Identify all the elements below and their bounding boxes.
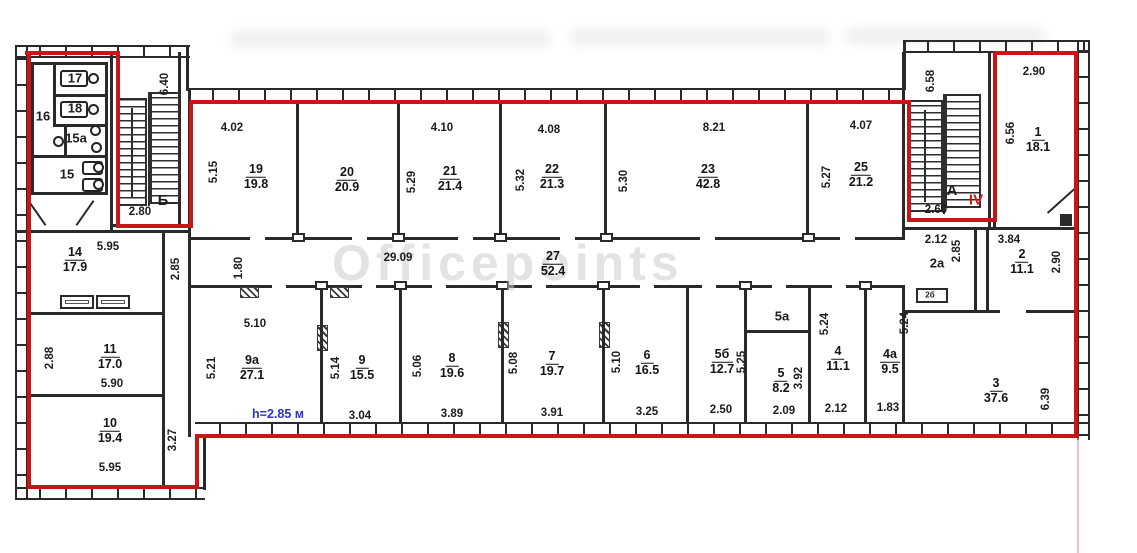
floor-plan: Officepoints 1919.82020.92121.42221.3234… — [0, 0, 1137, 553]
door-opening — [250, 236, 265, 241]
cabinet — [60, 295, 94, 309]
wall-segment — [902, 287, 905, 424]
door-opening — [840, 236, 855, 241]
room-label-11: 1117.0 — [98, 343, 122, 372]
pilaster — [600, 233, 613, 242]
scan-smudge — [230, 30, 550, 48]
wall-segment — [397, 102, 400, 240]
door-opening — [458, 236, 473, 241]
door-opening — [700, 236, 715, 241]
dim-label: 2.12 — [925, 234, 947, 246]
wall-segment — [902, 52, 905, 237]
dim-label: 2.85 — [951, 240, 963, 262]
boundary-line — [25, 51, 120, 55]
door-opening — [560, 236, 575, 241]
room-label-9а: 9а27.1 — [240, 354, 264, 383]
sink-icon — [91, 142, 102, 153]
wall-segment — [864, 288, 867, 424]
wall-segment — [808, 288, 811, 424]
room-label-21: 2121.4 — [438, 165, 462, 194]
door-opening — [432, 284, 446, 289]
pilaster — [802, 233, 815, 242]
wall-segment — [806, 102, 809, 240]
room-label-3: 337.6 — [984, 377, 1008, 406]
boundary-line — [993, 51, 1078, 55]
toilet-icon — [93, 162, 104, 173]
shaft-hatch — [330, 287, 349, 298]
pilaster — [292, 233, 305, 242]
door-jamb — [1060, 214, 1072, 226]
sink-icon — [90, 125, 101, 136]
toilet-icon — [88, 104, 99, 115]
stair-flight — [150, 92, 180, 204]
wall-segment — [186, 45, 189, 91]
wall-segment — [105, 62, 108, 194]
room-label-4а: 4а9.5 — [880, 348, 900, 377]
boundary-line — [189, 100, 193, 228]
dim-label: 6.58 — [925, 70, 937, 92]
dim-label: 5.21 — [206, 357, 218, 379]
toilet-icon — [88, 73, 99, 84]
stair-arrow — [924, 110, 926, 202]
dim-label: 5.24 — [899, 312, 911, 334]
dim-label: 3.25 — [636, 406, 658, 418]
door-opening — [272, 284, 286, 289]
room-label-9: 915.5 — [350, 354, 374, 383]
dim-label: 4.07 — [850, 120, 872, 132]
boundary-line — [116, 224, 193, 228]
room-label-4: 411.1 — [826, 345, 850, 374]
dim-label: 3.89 — [441, 408, 463, 420]
dim-label: 2.12 — [825, 403, 847, 415]
toilet-icon — [93, 179, 104, 190]
dim-label: 5.10 — [611, 351, 623, 373]
dim-label: 2.09 — [773, 405, 795, 417]
sink-icon — [53, 136, 64, 147]
room-label-5: 58.2 — [772, 367, 789, 396]
cabinet — [96, 295, 130, 309]
wall-segment — [188, 285, 905, 288]
dim-label: 5.06 — [412, 355, 424, 377]
wall-segment — [31, 192, 108, 195]
dim-label: 2а — [930, 256, 944, 271]
pilaster — [494, 233, 507, 242]
room-label-2: 211.1 — [1010, 248, 1034, 277]
dim-label: 5.32 — [515, 169, 527, 191]
dim-label: 4.02 — [221, 122, 243, 134]
door-opening — [640, 284, 654, 289]
dim-label: 29.09 — [384, 252, 413, 264]
room-label-25: 2521.2 — [849, 161, 873, 190]
dim-label: 4.10 — [431, 122, 453, 134]
dim-label: 5.90 — [101, 378, 123, 390]
dim-label: h=2.85 м — [252, 407, 304, 421]
dim-label: 3.27 — [167, 429, 179, 451]
dim-label: 5.95 — [97, 241, 119, 253]
dim-label: 2.90 — [1023, 66, 1045, 78]
room-label-5б: 5б12.7 — [710, 348, 734, 377]
dim-label: 5.10 — [244, 318, 266, 330]
wall-segment — [905, 310, 1077, 313]
door-opening — [832, 284, 846, 289]
boundary-line — [1074, 51, 1078, 438]
stair-arrow — [131, 108, 133, 198]
wall-segment — [28, 394, 165, 397]
dim-label: А — [947, 183, 957, 199]
dim-label: 15а — [65, 131, 87, 146]
boundary-line — [993, 51, 997, 222]
wall-segment — [744, 330, 811, 333]
dim-label: 2.60 — [925, 204, 947, 216]
boundary-line — [195, 434, 199, 489]
stair-divider — [943, 94, 945, 214]
wall-segment — [974, 230, 977, 310]
scan-smudge — [570, 29, 830, 46]
dim-label: 2.85 — [170, 258, 182, 280]
dim-label: 3.92 — [793, 367, 805, 389]
boundary-line — [907, 100, 911, 222]
wall-segment — [320, 288, 323, 424]
boundary-line-faint — [1077, 438, 1079, 553]
dim-label: 3.84 — [998, 234, 1020, 246]
dim-label: 2.90 — [1051, 251, 1063, 273]
boundary-line — [116, 51, 120, 228]
door-opening — [352, 236, 367, 241]
room-label-27: 2752.4 — [541, 250, 565, 279]
shaft-hatch — [240, 287, 259, 298]
dim-label: 18 — [68, 101, 82, 116]
wall-segment — [31, 155, 108, 158]
dim-label: 2.80 — [129, 206, 151, 218]
dim-label: 5.14 — [330, 357, 342, 379]
door-leaf — [76, 200, 95, 226]
dim-label: 5.08 — [508, 352, 520, 374]
dim-label: 1.83 — [877, 402, 899, 414]
dim-label: Б — [158, 193, 168, 209]
wall-segment — [986, 230, 989, 310]
dim-label: IV — [969, 192, 983, 209]
wall-segment — [602, 288, 605, 424]
door-opening — [362, 284, 376, 289]
room-label-7: 719.7 — [540, 350, 564, 379]
room-label-14: 1417.9 — [63, 246, 87, 275]
wall-segment — [604, 102, 607, 240]
boundary-line — [195, 434, 1079, 438]
dim-label: 6.39 — [1040, 388, 1052, 410]
room-label-1: 118.1 — [1026, 126, 1050, 155]
dim-label: 3.91 — [541, 407, 563, 419]
wall-segment — [499, 102, 502, 240]
door-opening — [772, 284, 786, 289]
dim-label: 4.08 — [538, 124, 560, 136]
wall-segment — [988, 52, 991, 227]
wall-segment — [53, 94, 107, 97]
wall-segment — [53, 62, 56, 126]
boundary-line — [189, 100, 910, 104]
dim-label: 6.40 — [159, 73, 171, 95]
wall-segment — [31, 62, 34, 194]
wall-segment — [110, 52, 113, 230]
dim-label: 5.15 — [208, 161, 220, 183]
wall-segment — [31, 62, 108, 65]
dim-label: 1.80 — [233, 257, 245, 279]
dim-label: 5.24 — [819, 313, 831, 335]
dim-label: 16 — [36, 109, 50, 124]
dim-label: 2.50 — [710, 404, 732, 416]
dim-label: 5.27 — [821, 166, 833, 188]
dim-label: 5.95 — [99, 462, 121, 474]
wall-segment — [686, 288, 689, 424]
door-leaf — [1047, 188, 1075, 214]
wall-segment — [296, 102, 299, 240]
wall-segment — [501, 288, 504, 424]
dim-label: 15 — [60, 167, 74, 182]
dim-label: 5.29 — [406, 171, 418, 193]
dim-label: 17 — [68, 71, 82, 86]
door-opening — [532, 284, 546, 289]
room-label-6: 616.5 — [635, 349, 659, 378]
room-label-20: 2020.9 — [335, 166, 359, 195]
window-wall — [1077, 40, 1090, 440]
wall-segment — [28, 312, 165, 315]
wall-segment — [905, 227, 1077, 230]
room-label-22: 2221.3 — [540, 163, 564, 192]
door-opening — [1000, 309, 1026, 314]
room-label-23: 2342.8 — [696, 163, 720, 192]
dim-label: 6.56 — [1005, 122, 1017, 144]
dim-label: 2б — [925, 291, 934, 300]
pilaster — [392, 233, 405, 242]
dim-label: 5.25 — [736, 351, 748, 373]
boundary-line — [27, 485, 197, 489]
dim-label: 5а — [775, 309, 789, 324]
dim-label: 5.30 — [618, 170, 630, 192]
room-label-10: 1019.4 — [98, 417, 122, 446]
wall-segment — [203, 434, 206, 490]
door-opening — [702, 284, 716, 289]
dim-label: 3.04 — [349, 410, 371, 422]
wall-segment — [399, 288, 402, 424]
stair-divider — [148, 92, 150, 206]
room-label-19: 1919.8 — [244, 163, 268, 192]
dim-label: 8.21 — [703, 122, 725, 134]
boundary-line — [27, 51, 31, 489]
wall-segment — [162, 232, 165, 487]
boundary-line — [907, 218, 997, 222]
room-label-8: 819.6 — [440, 352, 464, 381]
dim-label: 2.88 — [44, 347, 56, 369]
